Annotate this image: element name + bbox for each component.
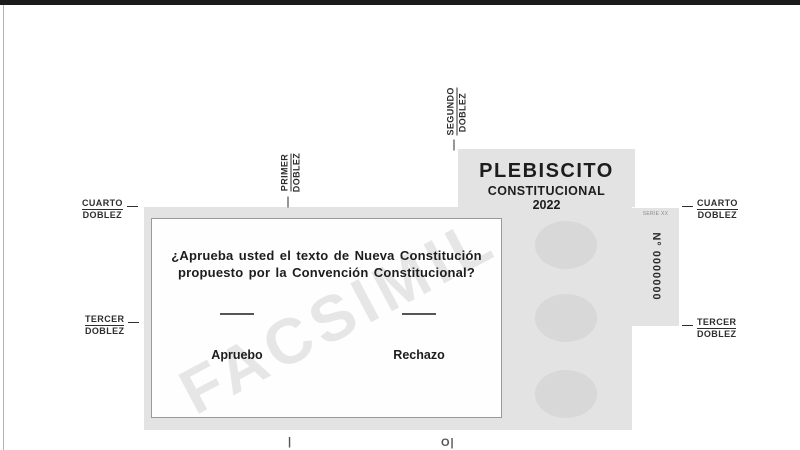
fold-tick	[454, 140, 455, 151]
fold-word: CUARTO	[82, 199, 123, 210]
ballot-year: 2022	[458, 198, 635, 212]
fold-tick	[682, 325, 693, 326]
fold-word: DOBLEZ	[82, 211, 123, 220]
ballot-facsimile-page: SERIE XX N° 0000000 PLEBISCITO CONSTITUC…	[0, 0, 800, 450]
fold-label-primer-top: PRIMER DOBLEZ	[281, 153, 300, 193]
option-apruebo: Apruebo	[192, 313, 282, 362]
apruebo-label: Apruebo	[192, 348, 282, 362]
fold-word: DOBLEZ	[697, 211, 738, 220]
security-oval	[535, 370, 597, 418]
security-oval	[535, 221, 597, 269]
fold-tick	[682, 206, 693, 207]
serial-number: N° 0000000	[649, 216, 662, 317]
rechazo-label: Rechazo	[374, 348, 464, 362]
fold-tick	[127, 206, 138, 207]
security-oval	[535, 294, 597, 342]
fold-word: DOBLEZ	[697, 330, 736, 339]
fold-word: DOBLEZ	[292, 153, 301, 193]
fold-label-segundo-top: SEGUNDO DOBLEZ	[447, 90, 466, 136]
apruebo-mark-line	[220, 313, 254, 315]
rechazo-mark-line	[402, 313, 436, 315]
capture-left-border	[3, 5, 4, 450]
question-box: ¿Aprueba usted el texto de Nueva Constit…	[151, 218, 502, 418]
fold-word: DOBLEZ	[458, 90, 467, 136]
question-line-1: ¿Aprueba usted el texto de Nueva Constit…	[171, 248, 482, 263]
question-line-2: propuesto por la Convención Constitucion…	[178, 265, 475, 280]
fold-word: PRIMER	[281, 154, 292, 191]
fold-word: DOBLEZ	[85, 327, 124, 336]
bottom-fold-mark-left: |	[288, 436, 292, 448]
bottom-fold-mark-right: O|	[441, 437, 455, 449]
fold-label-tercer-right: TERCER DOBLEZ	[697, 318, 736, 338]
fold-word: CUARTO	[697, 199, 738, 210]
fold-tick	[288, 197, 289, 208]
fold-word: SEGUNDO	[447, 87, 458, 135]
ballot-question: ¿Aprueba usted el texto de Nueva Constit…	[162, 247, 491, 281]
ballot-header: PLEBISCITO CONSTITUCIONAL 2022	[458, 149, 635, 207]
fold-word: TERCER	[85, 315, 124, 326]
ballot-subtitle: CONSTITUCIONAL	[458, 184, 635, 198]
fold-label-cuarto-left: CUARTO DOBLEZ	[82, 199, 123, 219]
ballot-title: PLEBISCITO	[458, 160, 635, 183]
option-rechazo: Rechazo	[374, 313, 464, 362]
fold-label-cuarto-right: CUARTO DOBLEZ	[697, 199, 738, 219]
fold-label-tercer-left: TERCER DOBLEZ	[85, 315, 124, 335]
fold-word: TERCER	[697, 318, 736, 329]
capture-top-border	[0, 0, 800, 5]
fold-tick	[128, 322, 139, 323]
